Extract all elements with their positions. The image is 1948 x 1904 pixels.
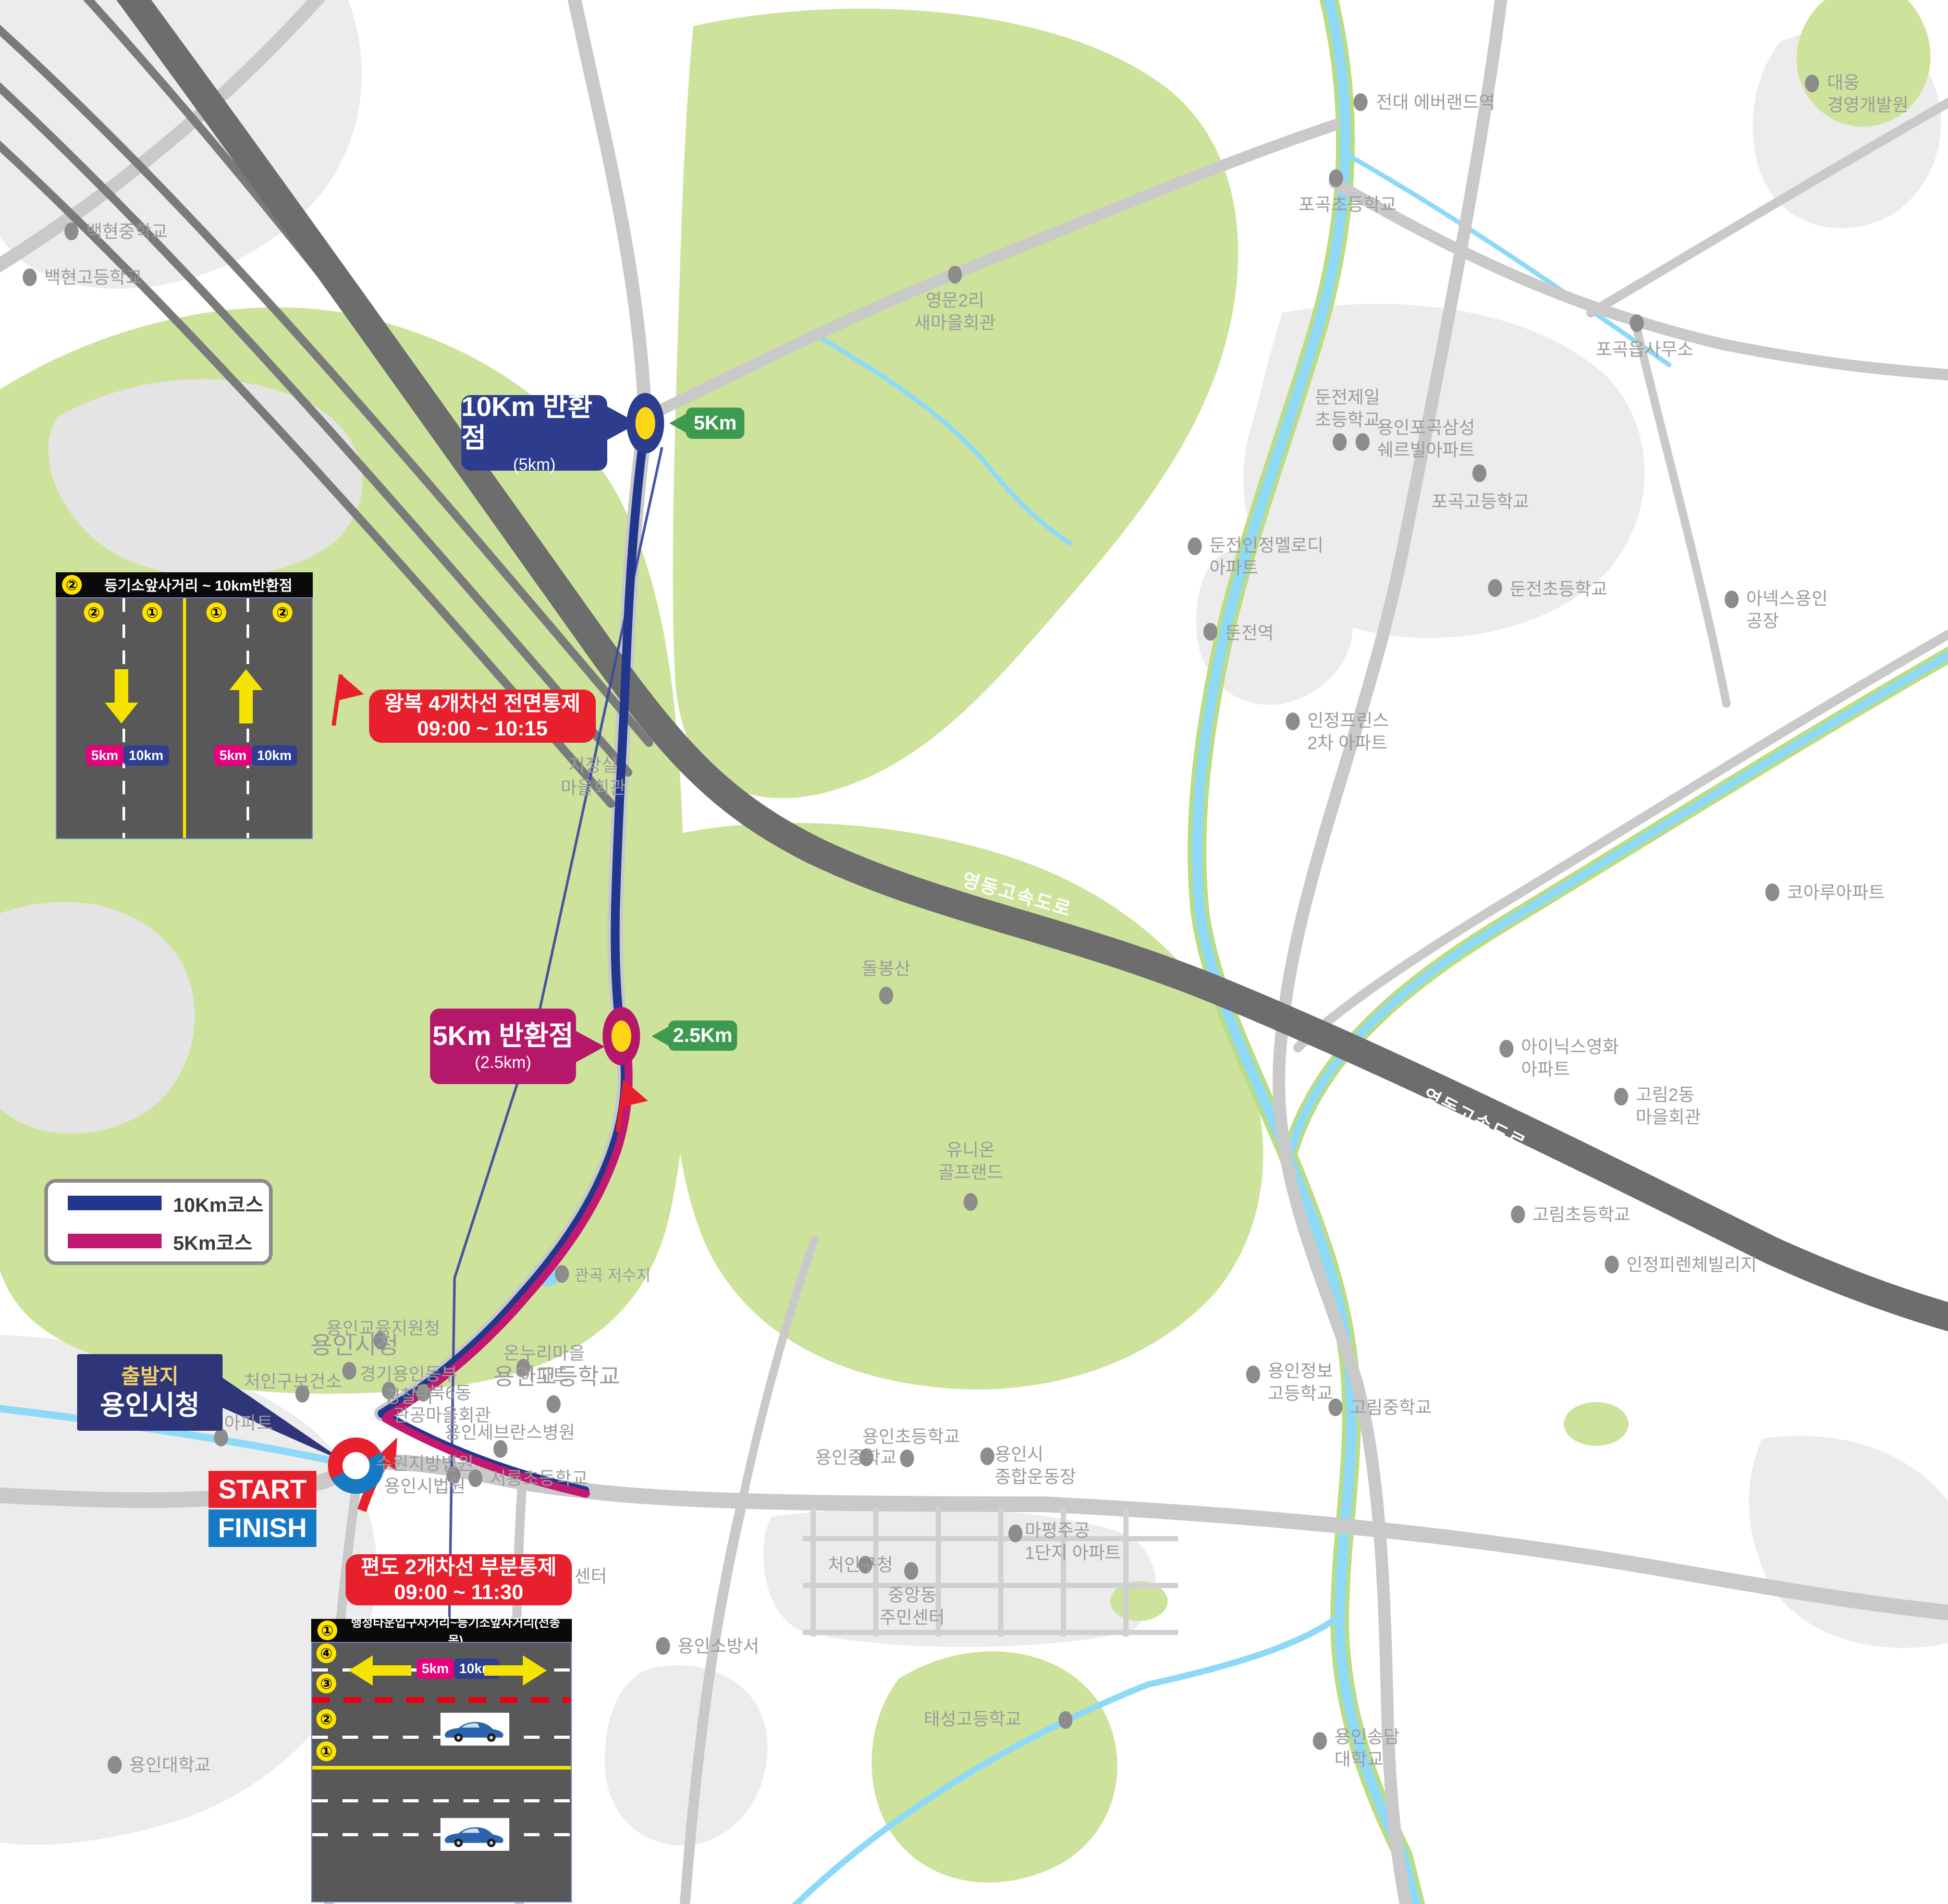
turn10-subtitle: (5km) bbox=[513, 454, 556, 475]
badge-5km: 5km bbox=[416, 1659, 454, 1679]
closure-notice-1: 왕복 4개차선 전면통제 09:00 ~ 10:15 bbox=[369, 690, 596, 743]
lane-chip: ① bbox=[206, 603, 226, 622]
badge-10km: 10km bbox=[252, 745, 297, 766]
place-label: 역북6동 관공마을회관 bbox=[393, 1382, 491, 1427]
place-label: 관곡 저수지 bbox=[574, 1264, 651, 1287]
highway-name-label: 영동고속도로 bbox=[1419, 1081, 1532, 1157]
place-label: 둔전제일 초등학교 bbox=[1315, 387, 1380, 432]
place-label: 포곡고등학교 bbox=[1431, 491, 1529, 513]
place-label: 백현중학교 bbox=[86, 221, 167, 243]
inset2-header: ② 등기소앞사거리 ~ 10km반환점 bbox=[56, 572, 313, 597]
inset2-title: 등기소앞사거리 ~ 10km반환점 bbox=[90, 574, 307, 595]
place-dot bbox=[1614, 1088, 1628, 1105]
place-dot bbox=[1333, 433, 1347, 451]
turn5-callout: 5Km 반환점 (2.5km) bbox=[430, 1009, 576, 1084]
place-dot bbox=[879, 987, 893, 1004]
place-dot bbox=[1605, 1256, 1619, 1273]
lane-chip: ① bbox=[316, 1741, 336, 1761]
finish-text: FINISH bbox=[218, 1513, 307, 1544]
lane-chip: ② bbox=[84, 603, 104, 622]
arrow-up-icon bbox=[229, 669, 263, 723]
place-label: 용인시청 bbox=[310, 1334, 398, 1357]
place-label: 인정프린스 2차 아파트 bbox=[1307, 710, 1389, 755]
place-dot bbox=[108, 1756, 122, 1774]
map-root: 백현중학교백현고등학교전대 에버랜드역포곡초등학교대웅 경영개발원영문2리 새마… bbox=[0, 0, 1948, 1904]
place-label: 용인포곡삼성 쉐르빌아파트 bbox=[1377, 417, 1475, 462]
place-label: 영문2리 새마을회관 bbox=[914, 290, 996, 335]
closure2-line2: 09:00 ~ 11:30 bbox=[346, 1580, 572, 1605]
place-label: 백현고등학교 bbox=[44, 267, 142, 289]
place-label: 고림2동 마을회관 bbox=[1636, 1084, 1701, 1129]
finish-label: FINISH bbox=[209, 1509, 316, 1547]
place-dot bbox=[1473, 464, 1487, 482]
place-dot bbox=[1204, 623, 1218, 641]
inset1-road: ④ ③ ② ① 5km10km bbox=[311, 1642, 572, 1902]
place-label: 용인고등학교 bbox=[494, 1366, 620, 1388]
turn5-badge-text: 2.5Km bbox=[673, 1025, 732, 1047]
departure-callout: 출발지 용인시청 bbox=[77, 1354, 223, 1431]
lane-diagram-2: ② 등기소앞사거리 ~ 10km반환점 ② ① ① ② 5km10km 5km1… bbox=[56, 572, 313, 839]
place-label: 중앙동 주민센터 bbox=[879, 1584, 945, 1629]
badge-5km: 5km bbox=[214, 745, 252, 766]
legend-row-10km: 10Km코스 bbox=[68, 1189, 269, 1218]
turn5-subtitle: (2.5km) bbox=[475, 1052, 531, 1073]
place-label: 처인구보건소 bbox=[244, 1371, 342, 1393]
place-dot bbox=[555, 1265, 569, 1283]
place-label: 둔전역 bbox=[1225, 622, 1274, 645]
place-labels-layer: 백현중학교백현고등학교전대 에버랜드역포곡초등학교대웅 경영개발원영문2리 새마… bbox=[0, 0, 1948, 1904]
place-dot bbox=[23, 268, 37, 286]
place-label: 용인세브란스병원 bbox=[445, 1422, 575, 1444]
arrow-right-icon bbox=[484, 1655, 547, 1686]
center-line bbox=[183, 598, 186, 838]
closure-divider bbox=[312, 1697, 571, 1703]
turn5-title: 5Km 반환점 bbox=[433, 1021, 574, 1052]
place-label: 돌봉산 bbox=[862, 958, 911, 980]
place-dot bbox=[1313, 1732, 1327, 1750]
place-dot bbox=[1356, 433, 1370, 451]
closure1-line1: 왕복 4개차선 전면통제 bbox=[369, 691, 596, 716]
lane-chip: ② bbox=[273, 603, 292, 622]
place-dot bbox=[656, 1637, 670, 1655]
place-label: 용인시 종합운동장 bbox=[995, 1444, 1076, 1489]
place-label: 용인중학교 bbox=[815, 1447, 897, 1469]
place-dot bbox=[1725, 591, 1739, 608]
inset1-number-chip: ① bbox=[317, 1620, 337, 1640]
place-label: 유니온 골프랜드 bbox=[938, 1139, 1003, 1184]
legend-row-5km: 5Km코스 bbox=[68, 1227, 269, 1256]
departure-tag: 출발지 bbox=[121, 1363, 178, 1390]
start-text: START bbox=[218, 1474, 307, 1505]
distance-badges: 5km10km bbox=[86, 745, 169, 766]
place-dot bbox=[1630, 314, 1644, 332]
place-label: 둔전초등학교 bbox=[1510, 579, 1608, 601]
place-dot bbox=[1009, 1525, 1023, 1542]
place-label: 코아루아파트 bbox=[1787, 882, 1885, 904]
place-label: 포곡읍사무소 bbox=[1596, 339, 1694, 361]
closure1-line2: 09:00 ~ 10:15 bbox=[369, 716, 596, 741]
place-dot bbox=[1188, 537, 1202, 555]
place-label: 고림중학교 bbox=[1350, 1397, 1431, 1419]
place-dot bbox=[1500, 1040, 1514, 1058]
place-label: 서룡초등학교 bbox=[490, 1468, 588, 1490]
place-dot bbox=[1329, 1398, 1343, 1416]
place-dot bbox=[948, 266, 962, 284]
legend-label-5km: 5Km코스 bbox=[173, 1227, 252, 1256]
legend-bar-5km bbox=[68, 1234, 162, 1248]
distance-badges: 5km10km bbox=[214, 745, 297, 766]
badge-10km: 10km bbox=[124, 745, 169, 766]
place-dot bbox=[904, 1562, 918, 1580]
turn10-title: 10Km 반환점 bbox=[461, 391, 607, 454]
closure2-line1: 편도 2개차선 부분통제 bbox=[346, 1555, 572, 1580]
place-label: 용인대학교 bbox=[129, 1754, 211, 1777]
place-dot bbox=[1286, 713, 1300, 730]
place-label: 용인초등학교 bbox=[862, 1426, 960, 1448]
place-dot bbox=[1511, 1206, 1525, 1223]
place-dot bbox=[1766, 883, 1780, 901]
turn10-distance-badge: 5Km bbox=[686, 408, 744, 439]
highway-name-label: 영동고속도로 bbox=[960, 865, 1076, 922]
legend-label-10km: 10Km코스 bbox=[173, 1189, 263, 1218]
place-label: 센터 bbox=[574, 1566, 607, 1588]
place-dot bbox=[65, 223, 79, 240]
car-image bbox=[440, 1815, 509, 1854]
departure-name: 용인시청 bbox=[100, 1390, 200, 1422]
lane-chip: ② bbox=[316, 1709, 336, 1729]
turn5-distance-badge: 2.5Km bbox=[668, 1021, 737, 1051]
place-label: 아파트 bbox=[224, 1412, 273, 1435]
place-dot bbox=[1246, 1366, 1260, 1383]
legend-bar-10km bbox=[68, 1196, 162, 1210]
place-label: 둔전인정멜로디 아파트 bbox=[1209, 535, 1324, 580]
arrow-left-icon bbox=[349, 1655, 411, 1686]
place-label: 고림초등학교 bbox=[1533, 1204, 1631, 1226]
place-label: 용인정보 고등학교 bbox=[1268, 1360, 1333, 1405]
lane-chip: ④ bbox=[316, 1643, 336, 1663]
badge-5km: 5km bbox=[86, 745, 124, 766]
inset2-road: ② ① ① ② 5km10km 5km10km bbox=[56, 597, 313, 839]
lane-divider bbox=[312, 1799, 571, 1802]
turn10-badge-text: 5Km bbox=[694, 412, 737, 435]
place-label: 인정피렌체빌리지 bbox=[1626, 1254, 1757, 1276]
place-dot bbox=[1059, 1711, 1073, 1729]
place-label: 지장실 마을회관 bbox=[560, 755, 626, 800]
turn10-callout: 10Km 반환점 (5km) bbox=[461, 395, 607, 471]
place-dot bbox=[342, 1362, 357, 1380]
place-label: 처인구청 bbox=[828, 1554, 893, 1577]
place-label: 태성고등학교 bbox=[924, 1709, 1022, 1731]
place-dot bbox=[1805, 75, 1819, 92]
place-label: 전대 에버랜드역 bbox=[1376, 92, 1495, 114]
lane-chip: ① bbox=[142, 603, 162, 622]
place-label: 마평주공 1단지 아파트 bbox=[1025, 1520, 1121, 1565]
place-label: 용인송담 대학교 bbox=[1334, 1726, 1400, 1771]
inset2-number-chip: ② bbox=[62, 575, 82, 595]
place-dot bbox=[1488, 579, 1502, 597]
place-label: 아이닉스영화 아파트 bbox=[1521, 1036, 1619, 1081]
center-line bbox=[312, 1766, 571, 1770]
place-dot bbox=[469, 1469, 483, 1487]
place-dot bbox=[981, 1447, 995, 1465]
place-label: 용인소방서 bbox=[678, 1636, 759, 1658]
place-dot bbox=[900, 1450, 914, 1467]
place-label: 대웅 경영개발원 bbox=[1827, 72, 1908, 117]
place-label: 포곡초등학교 bbox=[1298, 194, 1396, 216]
closure-notice-2: 편도 2개차선 부분통제 09:00 ~ 11:30 bbox=[346, 1554, 572, 1605]
inset1-header: ① 행정타운입구사거리~등기소앞사거리(전종목) bbox=[311, 1619, 572, 1642]
place-dot bbox=[547, 1395, 561, 1413]
course-legend: 10Km코스 5Km코스 bbox=[44, 1179, 273, 1265]
place-dot bbox=[1329, 169, 1343, 187]
lane-diagram-1: ① 행정타운입구사거리~등기소앞사거리(전종목) ④ ③ ② ① 5km10km bbox=[311, 1619, 572, 1902]
place-dot bbox=[1354, 93, 1368, 111]
arrow-down-icon bbox=[105, 669, 138, 723]
place-label: 수원지방법원 용인시법원 bbox=[376, 1453, 474, 1498]
start-label: START bbox=[209, 1471, 316, 1508]
car-image bbox=[440, 1710, 509, 1749]
place-dot bbox=[964, 1193, 978, 1211]
lane-chip: ③ bbox=[316, 1674, 336, 1693]
place-label: 아넥스용인 공장 bbox=[1746, 588, 1828, 633]
